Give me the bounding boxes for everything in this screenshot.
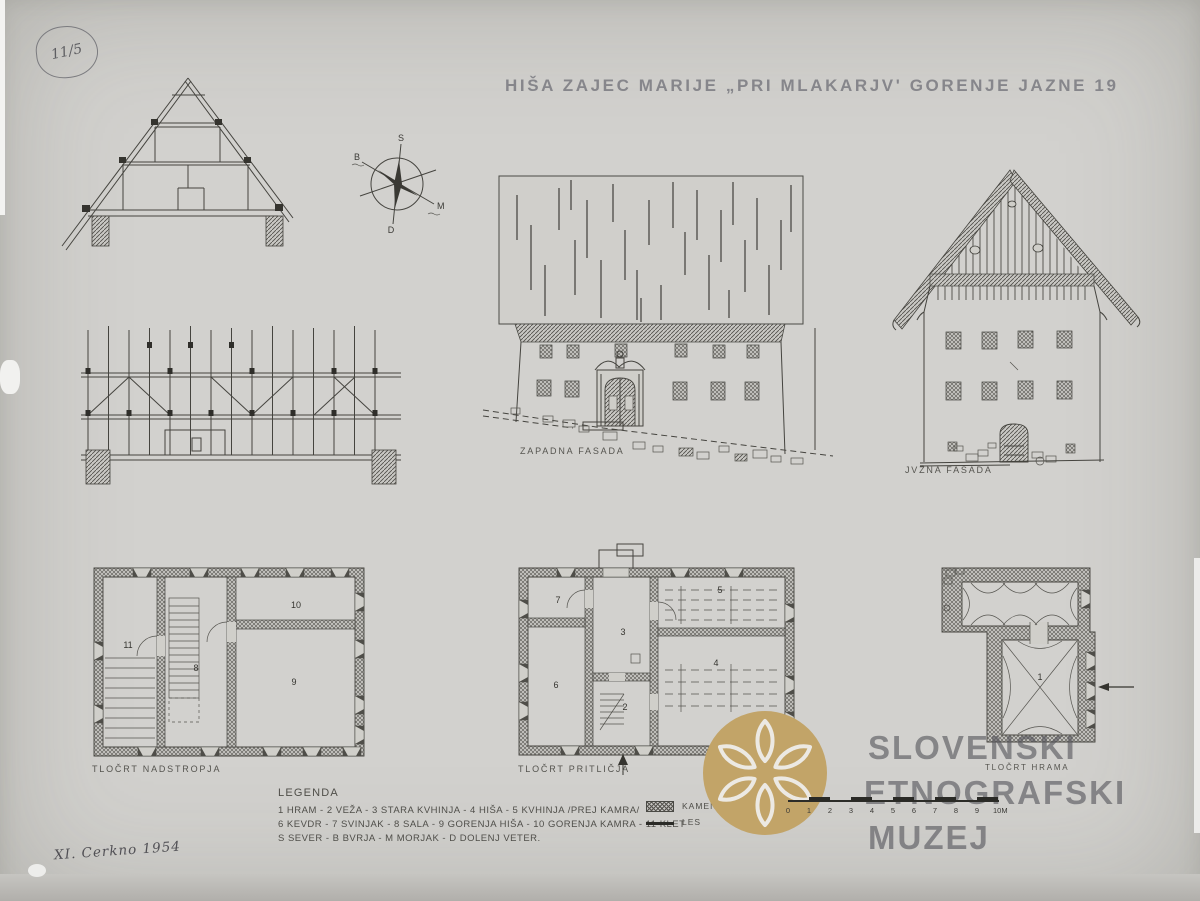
- legend: LEGENDA 1 HRAM - 2 VEŽA - 3 STARA KVHINJ…: [278, 786, 685, 846]
- frame-lines: [81, 326, 401, 460]
- scan-edge-right: [1194, 558, 1200, 833]
- partition-3: [528, 618, 585, 627]
- south-facade-label: JVŽNA FASADA: [905, 465, 993, 475]
- foundation-pier-right: [266, 216, 283, 246]
- scan-edge-left: [0, 0, 5, 215]
- room-number: 3: [620, 627, 625, 637]
- scale-bar-block: [935, 797, 956, 801]
- stairs: [600, 694, 624, 730]
- compass-label-morjak: M: [437, 201, 445, 211]
- direction-arrow: [1098, 683, 1134, 691]
- wall-edges: [516, 328, 815, 454]
- door-gap-3: [609, 673, 625, 681]
- plank-dividers-room5: [681, 586, 731, 624]
- scale-tick: 10M: [993, 806, 1007, 815]
- scale-bar-block: [977, 797, 998, 801]
- partition-1: [157, 577, 165, 747]
- timber-frame-section: [76, 298, 408, 486]
- door-gap-2: [227, 622, 236, 642]
- scale-bar-block: [809, 797, 830, 801]
- vault-lines-stem-room: [1003, 641, 1077, 734]
- door-swing-2: [658, 602, 676, 620]
- floor-boards: [105, 658, 155, 738]
- lower-window-row: [537, 380, 759, 400]
- museum-wordmark-line3: MUZEJ: [868, 819, 990, 857]
- vault-lines-top-room: [963, 583, 1077, 625]
- door-gap-1: [585, 590, 593, 608]
- scale-tick: 3: [844, 806, 858, 815]
- west-facade-drawing: [483, 170, 833, 465]
- scale-tick: 7: [928, 806, 942, 815]
- partition-4: [658, 628, 785, 636]
- door-gap-2: [650, 602, 658, 620]
- door-swing-2: [207, 622, 227, 642]
- plank-dividers-room4: [681, 664, 731, 712]
- door-gap-1: [157, 636, 165, 656]
- foundation-pier-left: [92, 216, 109, 246]
- scale-tick: 5: [886, 806, 900, 815]
- museum-wordmark-line1: SLOVENSKI: [868, 729, 1077, 767]
- baroque-portal: [583, 351, 645, 430]
- gable-base-band: [930, 274, 1094, 286]
- compass-label-dolenj: D: [388, 225, 395, 235]
- scan-edge-bottom: [0, 874, 1200, 901]
- wood-line-swatch: [646, 822, 674, 825]
- compass-label-north: S: [398, 133, 404, 143]
- compass-rose: S B M D: [350, 132, 445, 234]
- archive-sheet: 11/5 HIŠA ZAJEC MARIJE „PRI MLAKARJV' GO…: [0, 0, 1200, 901]
- scale-tick: 6: [907, 806, 921, 815]
- door-swing-1: [137, 636, 157, 656]
- plank-pattern-room4: [665, 670, 778, 706]
- room-number: 1: [1037, 672, 1042, 682]
- room-number: 5: [717, 585, 722, 595]
- sill-pier-right: [372, 450, 396, 484]
- compass-label-burja: B: [354, 152, 360, 162]
- scale-tick: 1: [802, 806, 816, 815]
- door-swing-1: [567, 590, 585, 608]
- inventory-number: 11/5: [50, 41, 84, 63]
- room-number: 2: [622, 702, 627, 712]
- sill-pier-left: [86, 450, 110, 484]
- room-number: 6: [553, 680, 558, 690]
- stone-wall-ring: [942, 568, 1095, 742]
- door-gap-4: [650, 694, 658, 710]
- legend-line: 6 KEVDR - 7 SVINJAK - 8 SALA - 9 GORENJA…: [278, 818, 685, 832]
- upper-plan-label: TLOČRT NADSTROPJA: [92, 764, 221, 774]
- scale-bar-block: [851, 797, 872, 801]
- west-facade-label: ZAPADNA FASADA: [520, 446, 625, 456]
- small-mark: [1010, 362, 1018, 370]
- scan-spot-bottom-left: [28, 864, 46, 877]
- room-number: 7: [555, 595, 560, 605]
- cellar-door: [1000, 424, 1028, 462]
- legend-line: S SEVER - B BVRJA - M MORJAK - D DOLENJ …: [278, 832, 685, 846]
- room-number: 4: [713, 658, 718, 668]
- scale-tick: 9: [970, 806, 984, 815]
- room-number: 9: [291, 677, 296, 687]
- granary-plan: 1: [938, 556, 1138, 756]
- room-number: 10: [291, 600, 301, 610]
- scale-bar-block: [893, 797, 914, 801]
- date-note: XI. Cerkno 1954: [54, 839, 182, 864]
- partition-3: [236, 620, 355, 629]
- upper-floor-plan: 11 8 10 9: [88, 558, 370, 766]
- cellar-window-left: [948, 442, 957, 451]
- upper-window-row: [540, 344, 759, 358]
- material-key-wood: LES: [682, 817, 701, 827]
- room-number: 8: [193, 663, 198, 673]
- legend-title: LEGENDA: [278, 786, 685, 800]
- south-facade-drawing: [890, 162, 1152, 470]
- door-gap: [1030, 622, 1048, 644]
- cellar-window-right: [1066, 444, 1075, 453]
- entrance-gap: [603, 568, 629, 577]
- scan-blob-left: [0, 360, 20, 394]
- scale-tick: 4: [865, 806, 879, 815]
- sheet-title: HIŠA ZAJEC MARIJE „PRI MLAKARJV' GORENJE…: [505, 76, 1119, 96]
- roof-truss-section: [60, 70, 310, 255]
- scale-tick: 0: [781, 806, 795, 815]
- scale-tick: 2: [823, 806, 837, 815]
- room-number: 11: [123, 640, 132, 650]
- window-rows: [946, 331, 1072, 400]
- ground-plan-label: TLOČRT PRITLIČJA: [518, 764, 630, 774]
- stone-hatch-swatch: [646, 801, 674, 812]
- legend-line: 1 HRAM - 2 VEŽA - 3 STARA KVHINJA - 4 HI…: [278, 804, 685, 818]
- partition-2: [227, 577, 236, 747]
- eaves-band: [515, 324, 785, 342]
- rake-hooks: [893, 317, 1140, 330]
- roof-rake-left: [894, 170, 1016, 329]
- chimney-top: [599, 544, 643, 568]
- stove: [631, 654, 640, 663]
- stairs: [169, 598, 199, 722]
- scale-tick: 8: [949, 806, 963, 815]
- scale-bar: 0 1 2 3 4 5 6 7 8 9 10M: [788, 794, 1018, 818]
